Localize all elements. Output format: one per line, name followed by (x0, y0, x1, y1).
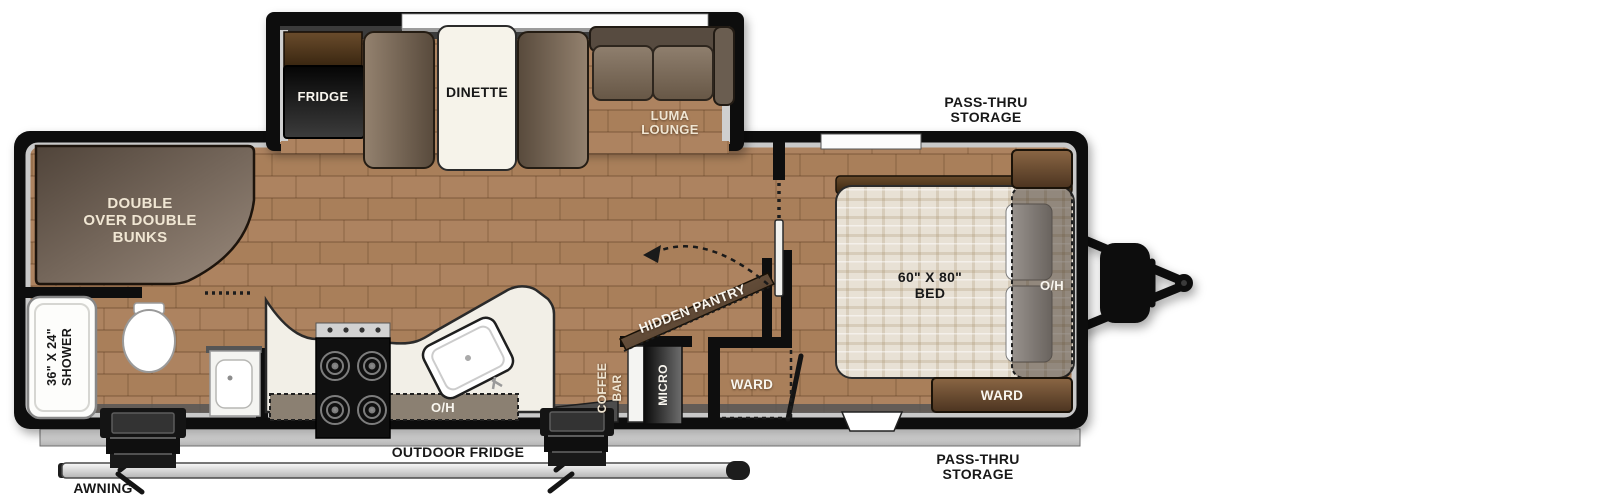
wall-hall-ward-top (708, 337, 792, 348)
propane-tank (1100, 243, 1150, 323)
pass-thru-top-label-1: PASS-THRU (944, 94, 1027, 110)
pass-thru-bottom-label-1: PASS-THRU (936, 451, 1019, 467)
luma-lounge-label-2: LOUNGE (641, 122, 698, 137)
hall-ward-label: WARD (731, 377, 773, 392)
bath-sink (216, 360, 252, 408)
bed-overhead-label: O/H (1040, 278, 1064, 293)
kitchen-overhead-label: O/H (431, 400, 455, 415)
fridge-label: FRIDGE (298, 89, 349, 104)
bunks-label-1: DOUBLE (107, 195, 172, 212)
entry-step-right (540, 408, 614, 466)
bedroom-ward-label: WARD (981, 388, 1023, 403)
sofa-cushion-right (653, 46, 713, 100)
luma-lounge-sofa (590, 27, 734, 105)
bed-label-1: 60" X 80" (898, 269, 962, 285)
svg-text:SHOWER: SHOWER (60, 328, 74, 386)
shower-label: 36" X 24" SHOWER (45, 328, 74, 386)
hitch-coupler-pin (1181, 280, 1187, 286)
sofa-cushion-left (593, 46, 653, 100)
bath-sink-drain (228, 376, 233, 381)
bunks-label-2: OVER DOUBLE (83, 212, 196, 229)
microwave-shelf (628, 346, 644, 422)
nightstand (1012, 150, 1072, 188)
awning-label: AWNING (73, 480, 132, 496)
bed-label-2: BED (915, 285, 945, 301)
dinette-label: DINETTE (446, 84, 508, 100)
window-bedroom-door-side (842, 412, 902, 431)
entry-step-left (100, 408, 186, 468)
outdoor-fridge-label: OUTDOOR FRIDGE (392, 444, 525, 460)
window-bedroom-front (821, 134, 921, 149)
hitch-assembly (1080, 238, 1193, 328)
wall-bedroom-partition-top (773, 142, 785, 180)
svg-text:36" X 24": 36" X 24" (45, 328, 59, 386)
svg-text:BAR: BAR (610, 375, 624, 402)
pass-thru-bottom-label-2: STORAGE (942, 466, 1013, 482)
floorplan-svg: FRIDGE DINETTE LUMA LOUNGE DOUBLE OVER D… (0, 0, 1600, 497)
dinette-bench-right (518, 32, 588, 168)
luma-lounge-label-1: LUMA (651, 108, 690, 123)
pass-thru-top-label-2: STORAGE (950, 109, 1021, 125)
pocket-door-leaf (775, 220, 783, 296)
awning-rail-right-cap (726, 461, 750, 480)
fridge-cabinet (284, 32, 362, 68)
wall-hall-ward-left (708, 344, 720, 420)
micro-label: MICRO (656, 364, 670, 406)
kitchen-overhead-cabinet (270, 394, 518, 420)
dinette-bench-left (364, 32, 434, 168)
floorplan-canvas: FRIDGE DINETTE LUMA LOUNGE DOUBLE OVER D… (0, 0, 1600, 497)
wall-pocket-left (762, 258, 772, 344)
svg-text:COFFEE: COFFEE (595, 363, 609, 413)
toilet (123, 310, 175, 372)
bunks-label-3: BUNKS (113, 229, 168, 246)
